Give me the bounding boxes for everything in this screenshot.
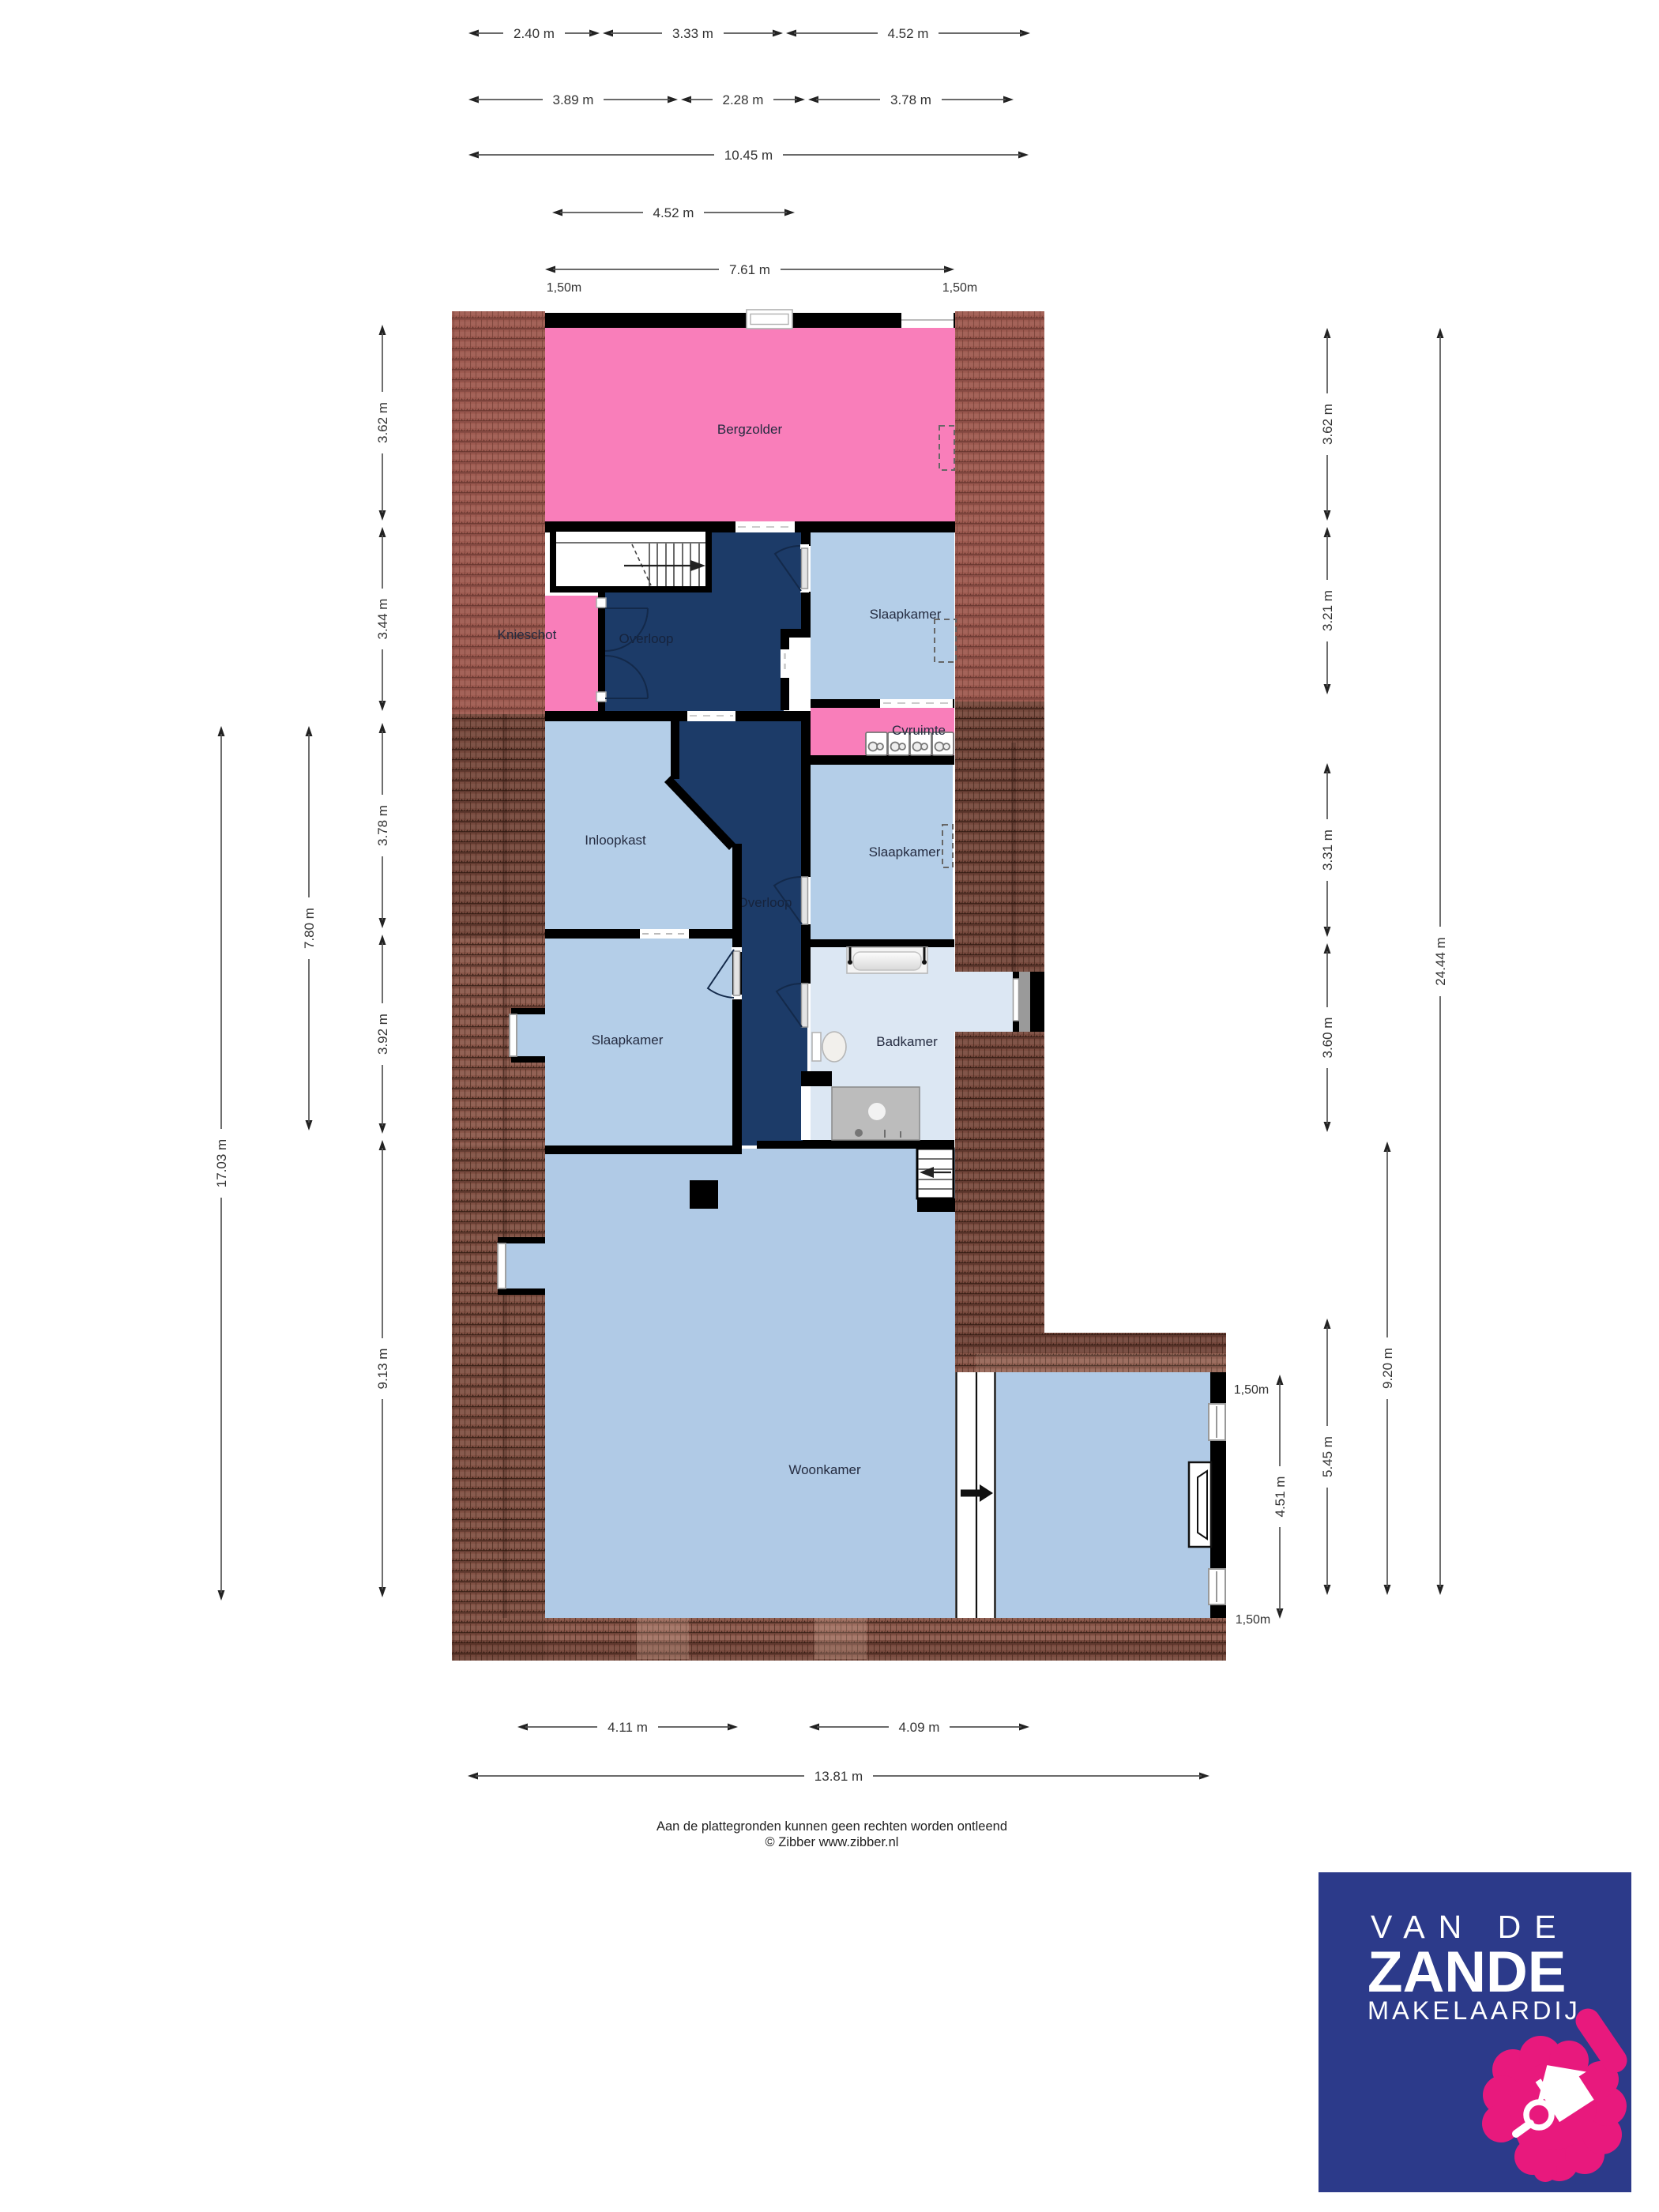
svg-text:Overloop: Overloop bbox=[619, 631, 674, 646]
svg-text:7.80 m: 7.80 m bbox=[302, 908, 317, 949]
svg-text:4.52 m: 4.52 m bbox=[888, 26, 929, 41]
svg-text:Inloopkast: Inloopkast bbox=[585, 833, 646, 848]
svg-text:4.11 m: 4.11 m bbox=[608, 1720, 648, 1735]
svg-text:17.03 m: 17.03 m bbox=[214, 1139, 229, 1187]
svg-text:24.44 m: 24.44 m bbox=[1433, 937, 1448, 985]
svg-text:Bergzolder: Bergzolder bbox=[717, 422, 783, 437]
svg-text:2.40 m: 2.40 m bbox=[513, 26, 555, 41]
svg-text:Woonkamer: Woonkamer bbox=[788, 1462, 861, 1477]
svg-text:3.78 m: 3.78 m bbox=[375, 805, 390, 846]
svg-text:Knieschot: Knieschot bbox=[498, 627, 557, 642]
svg-text:7.61 m: 7.61 m bbox=[729, 262, 770, 277]
svg-text:1,50m: 1,50m bbox=[942, 281, 977, 295]
svg-text:4.51 m: 4.51 m bbox=[1273, 1477, 1288, 1518]
svg-text:3.89 m: 3.89 m bbox=[553, 92, 594, 107]
svg-text:2.28 m: 2.28 m bbox=[723, 92, 764, 107]
svg-text:9.20 m: 9.20 m bbox=[1380, 1348, 1395, 1389]
svg-text:3.21 m: 3.21 m bbox=[1320, 590, 1335, 631]
svg-text:ZANDE: ZANDE bbox=[1367, 1940, 1566, 2004]
svg-text:Slaapkamer: Slaapkamer bbox=[870, 607, 942, 622]
svg-text:3.78 m: 3.78 m bbox=[890, 92, 931, 107]
svg-text:1,50m: 1,50m bbox=[547, 281, 581, 295]
svg-text:1,50m: 1,50m bbox=[1236, 1613, 1270, 1627]
svg-text:MAKELAARDIJ: MAKELAARDIJ bbox=[1367, 1996, 1581, 2025]
svg-text:5.45 m: 5.45 m bbox=[1320, 1436, 1335, 1477]
svg-text:Overloop: Overloop bbox=[738, 895, 792, 910]
svg-text:3.92 m: 3.92 m bbox=[375, 1014, 390, 1055]
svg-text:9.13 m: 9.13 m bbox=[375, 1349, 390, 1390]
svg-text:Slaapkamer: Slaapkamer bbox=[592, 1033, 664, 1048]
svg-text:© Zibber www.zibber.nl: © Zibber www.zibber.nl bbox=[766, 1835, 899, 1849]
svg-text:3.62 m: 3.62 m bbox=[375, 402, 390, 443]
svg-text:3.33 m: 3.33 m bbox=[672, 26, 713, 41]
svg-text:1,50m: 1,50m bbox=[1234, 1383, 1269, 1397]
svg-text:3.62 m: 3.62 m bbox=[1320, 404, 1335, 445]
svg-text:3.44 m: 3.44 m bbox=[375, 599, 390, 640]
svg-text:4.52 m: 4.52 m bbox=[653, 205, 694, 220]
svg-text:3.60 m: 3.60 m bbox=[1320, 1018, 1335, 1059]
svg-text:13.81 m: 13.81 m bbox=[814, 1769, 863, 1784]
svg-text:3.31 m: 3.31 m bbox=[1320, 829, 1335, 871]
svg-text:Aan de plattegronden kunnen ge: Aan de plattegronden kunnen geen rechten… bbox=[656, 1819, 1007, 1834]
svg-text:Badkamer: Badkamer bbox=[876, 1034, 938, 1049]
svg-text:Slaapkamer: Slaapkamer bbox=[869, 845, 941, 860]
svg-text:Cvruimte: Cvruimte bbox=[892, 723, 946, 738]
svg-text:10.45 m: 10.45 m bbox=[724, 148, 773, 163]
svg-text:4.09 m: 4.09 m bbox=[899, 1720, 940, 1735]
